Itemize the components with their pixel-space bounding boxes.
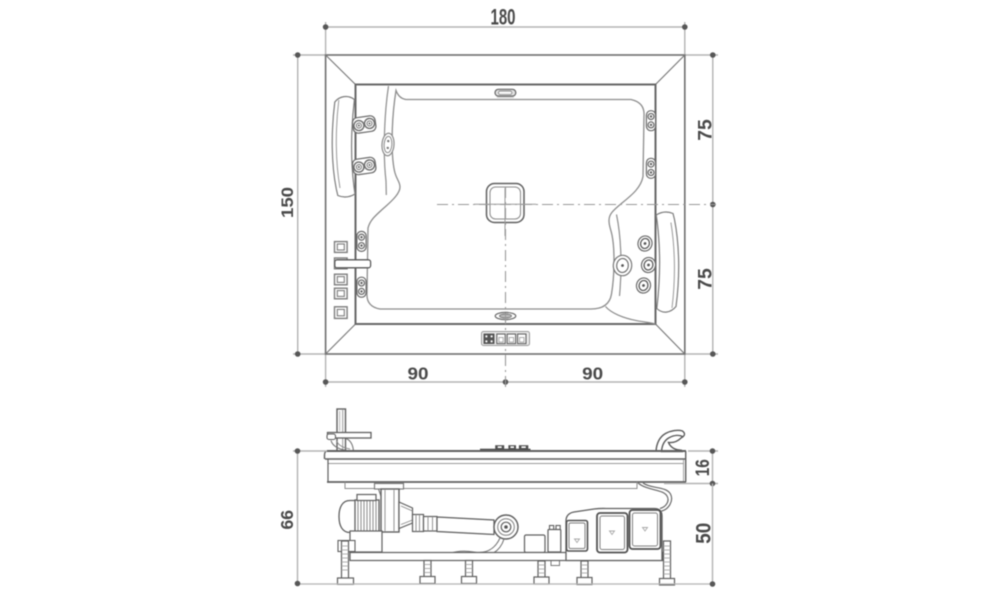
svg-text:75: 75 xyxy=(696,119,717,141)
svg-text:50: 50 xyxy=(692,523,715,544)
svg-text:90: 90 xyxy=(582,364,603,384)
svg-text:180: 180 xyxy=(491,5,516,30)
svg-text:66: 66 xyxy=(277,510,297,530)
svg-text:150: 150 xyxy=(278,187,297,218)
svg-text:75: 75 xyxy=(696,268,717,290)
svg-text:90: 90 xyxy=(408,364,429,384)
svg-text:16: 16 xyxy=(693,459,714,476)
